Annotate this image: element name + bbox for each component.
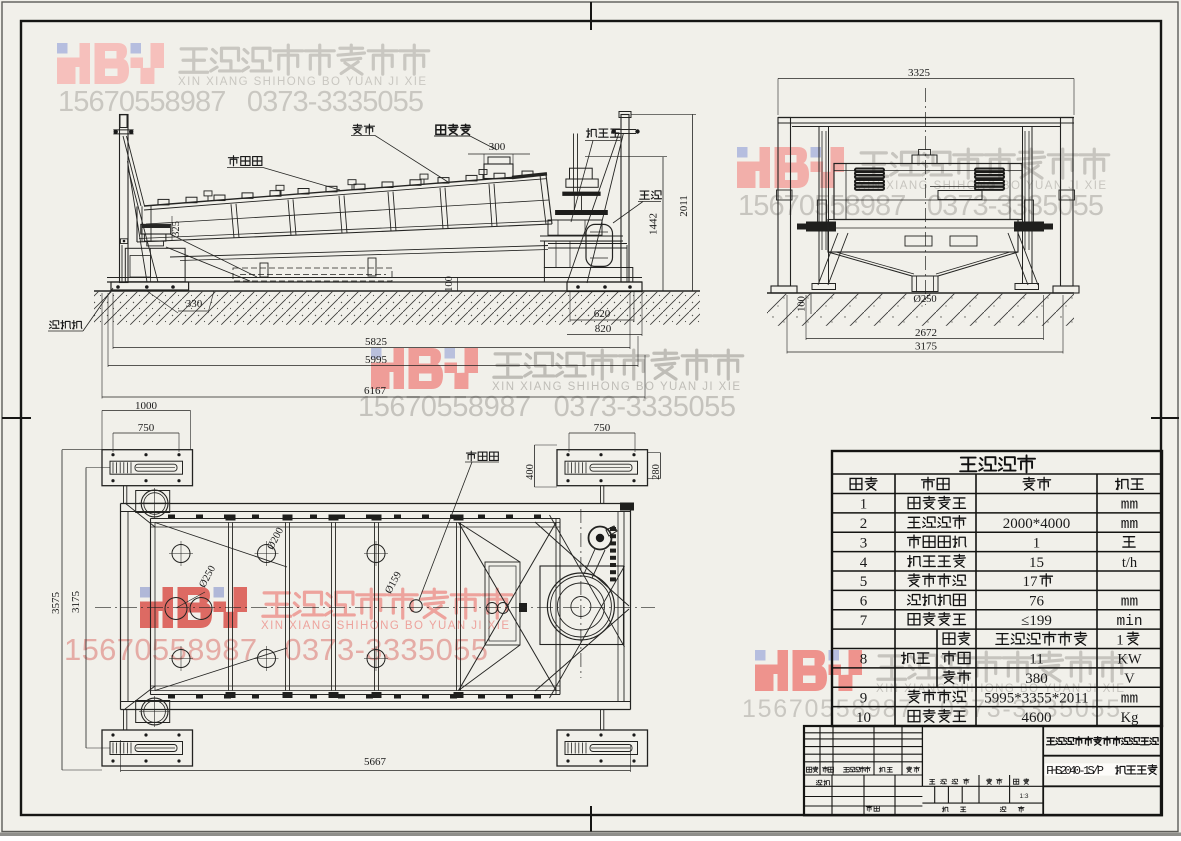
svg-text:750: 750 [138,422,155,434]
svg-text:2: 2 [860,516,868,532]
svg-text:1: 1 [1033,535,1041,551]
svg-text:5995*3355*2011: 5995*3355*2011 [984,690,1088,706]
svg-text:KW: KW [1117,652,1141,668]
svg-text:mm: mm [1121,595,1138,611]
svg-text:Kg: Kg [1121,710,1139,726]
svg-text:V: V [1124,671,1135,687]
svg-text:min: min [1116,614,1142,630]
svg-text:15670558987 0373-3335055: 15670558987 0373-3335055 [738,190,1104,222]
svg-text:7: 7 [860,613,868,629]
svg-text:5825: 5825 [365,336,388,348]
svg-text:≤199: ≤199 [1021,613,1052,629]
svg-text:330: 330 [186,298,203,310]
svg-text:3575: 3575 [50,592,62,615]
svg-text:3175: 3175 [70,591,82,614]
svg-text:5995: 5995 [365,354,388,366]
svg-text:Ø250: Ø250 [913,294,936,305]
svg-text:8: 8 [860,652,868,668]
svg-text:FHS2040-1S/P: FHS2040-1S/P [1046,764,1104,778]
svg-text:1: 1 [860,497,868,513]
svg-text:2672: 2672 [915,327,937,339]
svg-text:15: 15 [1029,555,1044,571]
svg-text:17: 17 [1023,574,1039,590]
svg-text:t/h: t/h [1122,555,1138,571]
svg-text:mm: mm [1121,691,1138,707]
svg-text:3: 3 [860,535,868,551]
svg-text:620: 620 [594,308,611,320]
svg-text:820: 820 [595,323,612,335]
svg-text:1:3: 1:3 [1019,793,1028,800]
svg-text:6167: 6167 [364,385,387,397]
svg-text:mm: mm [1121,517,1138,533]
svg-text:6: 6 [860,594,868,610]
svg-text:380: 380 [1025,671,1048,687]
svg-text:mm: mm [1121,498,1138,514]
svg-text:10: 10 [856,710,871,726]
svg-text:15670558987 0373-3335055: 15670558987 0373-3335055 [358,391,736,423]
svg-text:100: 100 [444,276,455,292]
svg-text:76: 76 [1029,594,1045,610]
svg-text:4600: 4600 [1022,710,1052,726]
svg-text:11: 11 [1029,652,1043,668]
svg-text:2000*4000: 2000*4000 [1003,516,1071,532]
svg-text:2011: 2011 [678,195,690,217]
svg-text:750: 750 [594,422,611,434]
svg-text:1442: 1442 [648,213,660,235]
svg-text:5: 5 [860,574,868,590]
svg-text:9: 9 [860,690,868,706]
svg-text:3325: 3325 [908,67,931,79]
svg-text:3175: 3175 [915,341,938,353]
svg-text:4: 4 [860,555,868,571]
svg-text:5667: 5667 [364,756,387,768]
svg-text:325: 325 [171,221,182,237]
svg-text:1: 1 [1116,632,1124,648]
svg-text:15670558987 0373-3335055: 15670558987 0373-3335055 [58,86,424,118]
svg-text:XIN XIANG SHIHONG BO YUAN JI X: XIN XIANG SHIHONG BO YUAN JI XIE [261,620,509,632]
